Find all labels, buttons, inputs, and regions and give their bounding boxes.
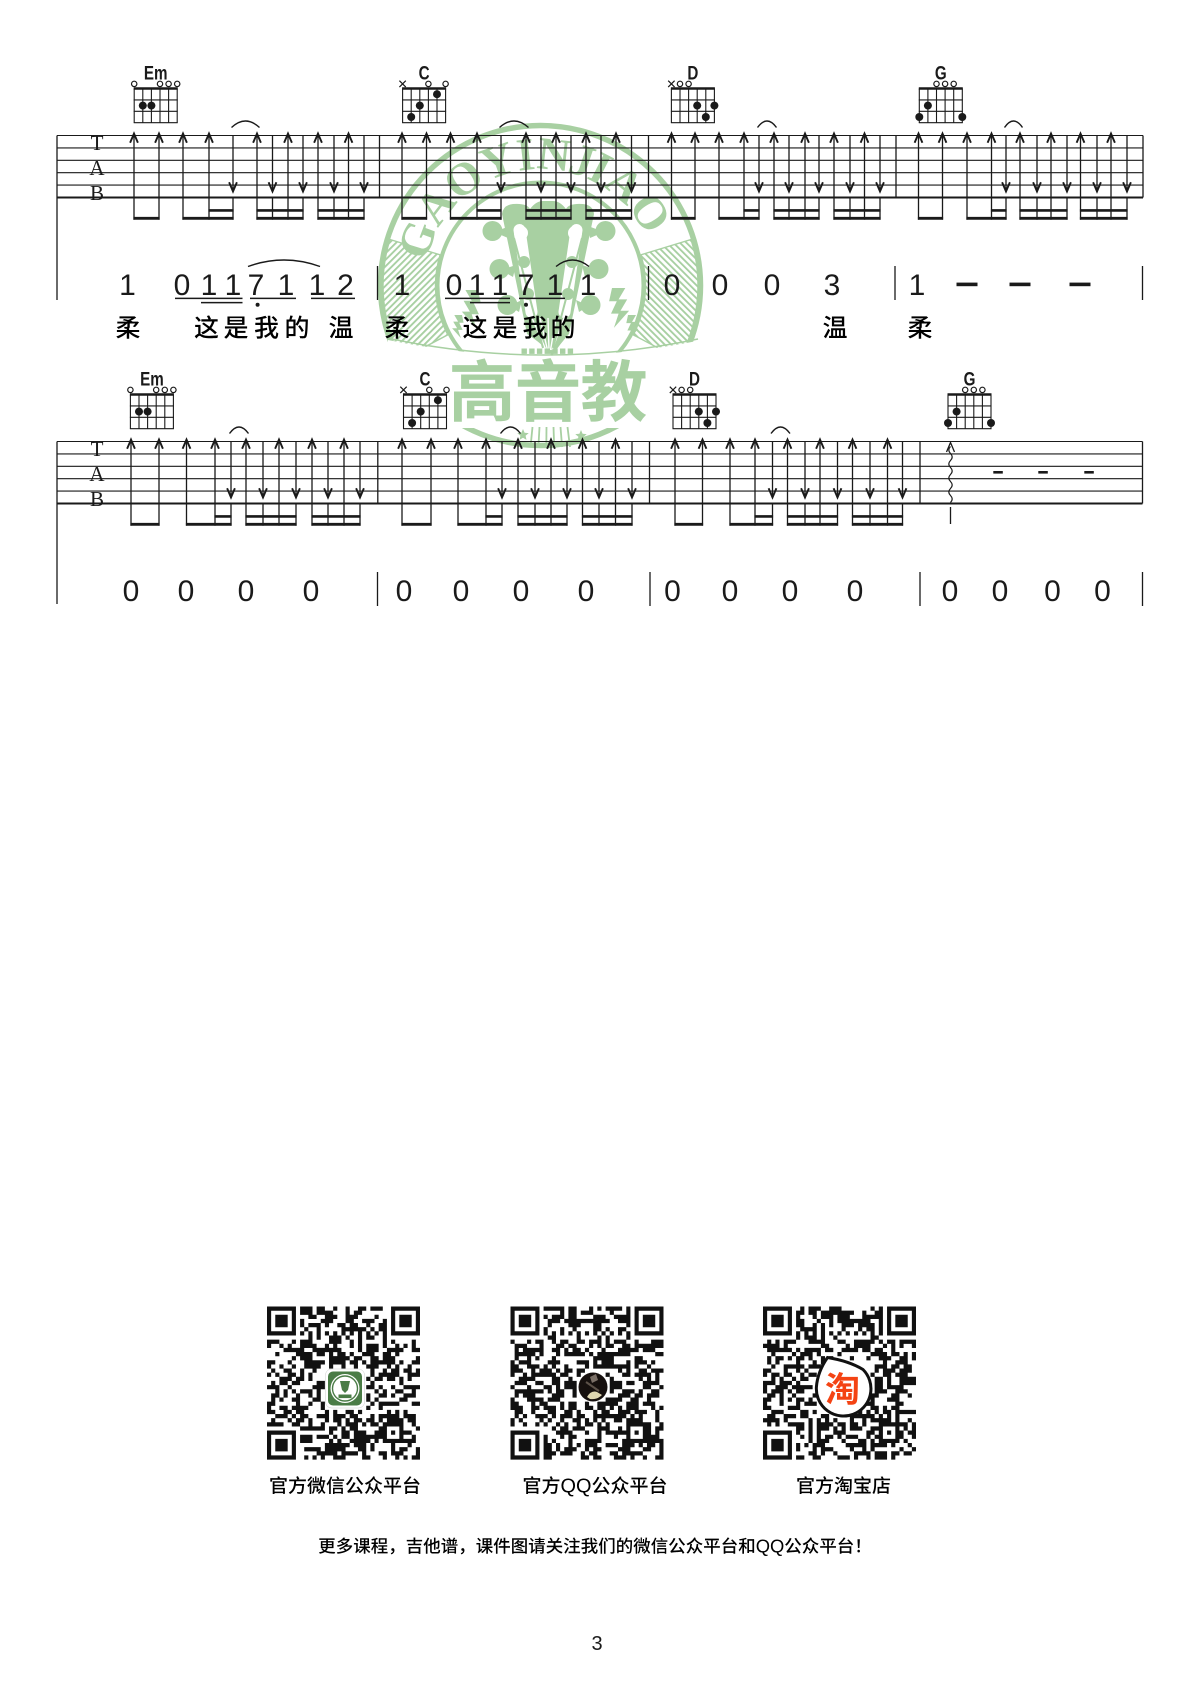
svg-text:0: 0 [664,269,681,302]
svg-text:T: T [91,437,104,461]
svg-text:0: 0 [942,575,959,608]
svg-text:0: 0 [446,269,463,302]
svg-text:0: 0 [303,575,320,608]
svg-text:0: 0 [578,575,595,608]
svg-text:7: 7 [518,269,535,302]
svg-text:1: 1 [547,269,564,302]
svg-text:1: 1 [278,269,295,302]
svg-text:1: 1 [119,269,136,302]
svg-text:1: 1 [469,269,486,302]
svg-text:Em: Em [144,62,168,84]
svg-text:0: 0 [178,575,195,608]
svg-text:0: 0 [1044,575,1061,608]
svg-text:0: 0 [238,575,255,608]
svg-text:0: 0 [123,575,140,608]
svg-text:0: 0 [453,575,470,608]
svg-text:0: 0 [722,575,739,608]
svg-text:1: 1 [394,269,411,302]
svg-text:0: 0 [664,575,681,608]
svg-text:Em: Em [140,368,164,390]
svg-text:0: 0 [782,575,799,608]
svg-text:B: B [90,181,104,205]
svg-text:C: C [420,368,431,390]
svg-text:C: C [419,62,430,84]
svg-text:0: 0 [513,575,530,608]
svg-text:3: 3 [824,269,841,302]
svg-text:0: 0 [712,269,729,302]
svg-text:B: B [90,487,104,511]
svg-text:1: 1 [909,269,926,302]
svg-text:Q: Q [561,1476,576,1498]
svg-text:D: D [689,368,700,390]
svg-text:1: 1 [225,269,242,302]
svg-text:0: 0 [847,575,864,608]
svg-text:A: A [89,156,105,180]
svg-text:2: 2 [337,269,354,302]
svg-text:Q: Q [576,1476,591,1498]
svg-text:D: D [687,62,698,84]
svg-text:1: 1 [201,269,218,302]
svg-text:Q: Q [770,1536,784,1557]
svg-text:0: 0 [1094,575,1111,608]
svg-text:Q: Q [756,1536,770,1557]
svg-text:0: 0 [396,575,413,608]
svg-text:0: 0 [764,269,781,302]
svg-text:1: 1 [492,269,509,302]
svg-text:3: 3 [591,1633,602,1655]
svg-text:0: 0 [174,269,191,302]
svg-text:1: 1 [309,269,326,302]
svg-text:A: A [89,462,105,486]
svg-text:0: 0 [992,575,1009,608]
svg-text:T: T [91,131,104,155]
svg-text:1: 1 [580,269,597,302]
svg-text:7: 7 [248,269,265,302]
